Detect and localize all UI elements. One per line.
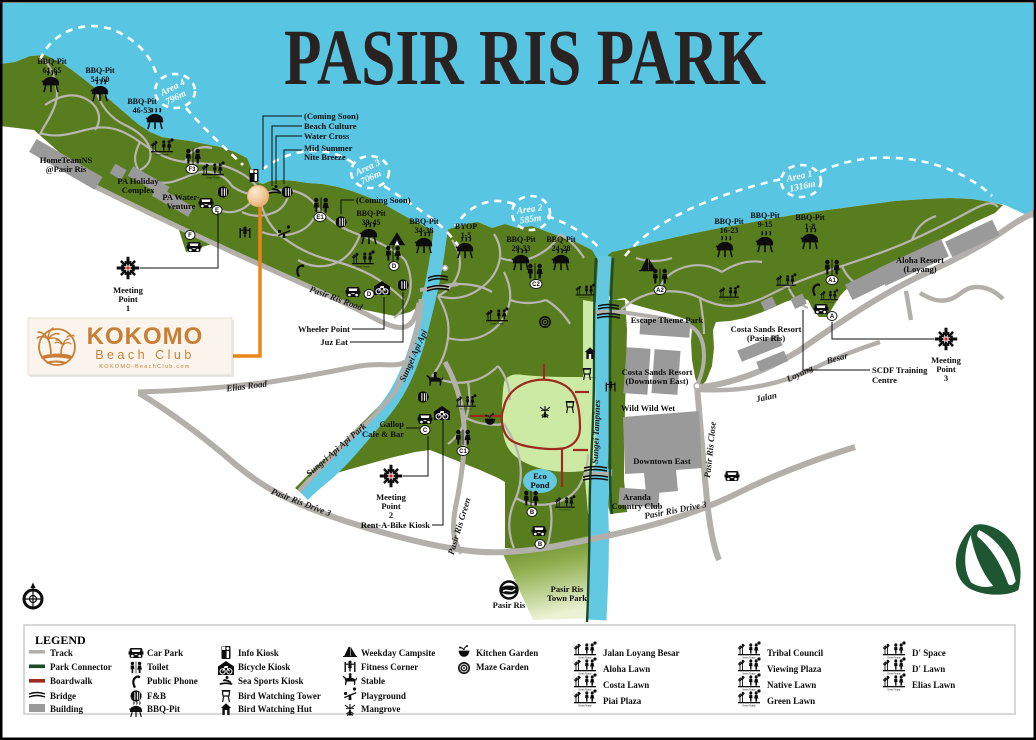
svg-text:C2: C2 — [532, 282, 540, 288]
svg-text:Complex: Complex — [122, 185, 155, 195]
svg-text:Piai Plaza: Piai Plaza — [603, 696, 642, 706]
svg-text:Pasir Ris: Pasir Ris — [493, 600, 526, 610]
svg-text:D: D — [367, 292, 372, 298]
svg-text:F&B: F&B — [147, 691, 166, 701]
svg-text:BBQ-Pit: BBQ-Pit — [714, 217, 744, 226]
svg-text:@Pasir Ris: @Pasir Ris — [46, 164, 87, 174]
svg-text:Wheeler Point: Wheeler Point — [298, 324, 350, 334]
svg-text:Wild Wild Wet: Wild Wild Wet — [621, 403, 675, 413]
svg-text:46-53: 46-53 — [133, 106, 152, 115]
svg-text:(Downtown East): (Downtown East) — [625, 376, 688, 386]
svg-text:Rent-A-Bike Kiosk: Rent-A-Bike Kiosk — [361, 520, 430, 530]
svg-text:Bird Watching Tower: Bird Watching Tower — [238, 691, 321, 701]
svg-text:Water Cross: Water Cross — [304, 131, 350, 141]
svg-text:16-23: 16-23 — [720, 226, 739, 235]
svg-text:Playground: Playground — [361, 691, 406, 701]
svg-text:Elias Lawn: Elias Lawn — [912, 680, 955, 690]
svg-text:Native Lawn: Native Lawn — [767, 680, 816, 690]
svg-text:BBQ-Pit: BBQ-Pit — [546, 235, 576, 244]
svg-text:Pond: Pond — [531, 480, 550, 490]
svg-text:3: 3 — [944, 373, 948, 383]
svg-text:B: B — [530, 510, 535, 516]
svg-text:9-15: 9-15 — [758, 220, 773, 229]
svg-text:Jalan Loyang Besar: Jalan Loyang Besar — [603, 648, 680, 658]
svg-text:Downtown East: Downtown East — [633, 456, 691, 466]
svg-text:F: F — [188, 233, 192, 239]
svg-text:C: C — [423, 428, 428, 434]
svg-text:KOKOMO-BeachClub.com: KOKOMO-BeachClub.com — [99, 364, 190, 370]
svg-text:Fitness Corner: Fitness Corner — [361, 662, 418, 672]
svg-text:BYOP: BYOP — [455, 222, 477, 231]
svg-text:1-8: 1-8 — [805, 222, 816, 231]
svg-text:Car Park: Car Park — [147, 648, 183, 658]
svg-text:Building: Building — [50, 704, 84, 714]
svg-text:Tribal Council: Tribal Council — [767, 648, 824, 658]
svg-text:Venture: Venture — [167, 201, 196, 211]
svg-text:BBQ-Pit: BBQ-Pit — [750, 211, 780, 220]
svg-text:D' Space: D' Space — [912, 648, 946, 658]
svg-text:Beach Club: Beach Club — [95, 348, 195, 362]
svg-text:LEGEND: LEGEND — [35, 633, 86, 647]
svg-text:A: A — [830, 314, 835, 320]
svg-text:(Loyang): (Loyang) — [903, 264, 936, 274]
svg-text:Park Connector: Park Connector — [50, 662, 112, 672]
svg-text:BBQ-Pit: BBQ-Pit — [37, 57, 67, 66]
svg-text:BBQ-Pit: BBQ-Pit — [506, 235, 536, 244]
svg-text:B: B — [538, 542, 543, 548]
svg-text:Nite Breeze: Nite Breeze — [304, 152, 346, 162]
svg-text:Green Lawn: Green Lawn — [767, 696, 815, 706]
svg-text:Info Kiosk: Info Kiosk — [238, 648, 279, 658]
svg-text:C1: C1 — [459, 449, 467, 455]
svg-text:Toilet: Toilet — [147, 662, 169, 672]
svg-text:(Coming Soon): (Coming Soon) — [356, 195, 411, 205]
svg-text:E1: E1 — [316, 215, 324, 221]
svg-text:Town Park: Town Park — [547, 593, 587, 603]
svg-text:A2: A2 — [656, 288, 664, 294]
svg-text:2: 2 — [389, 510, 393, 520]
svg-text:PASIR RIS PARK: PASIR RIS PARK — [284, 15, 766, 102]
svg-text:Centre: Centre — [872, 375, 897, 385]
svg-text:BBQ-Pit: BBQ-Pit — [356, 209, 386, 218]
svg-text:Boardwalk: Boardwalk — [50, 676, 93, 686]
svg-text:34-38: 34-38 — [415, 226, 434, 235]
svg-text:Sea Sports Kiosk: Sea Sports Kiosk — [238, 676, 304, 686]
svg-text:D: D — [392, 264, 397, 270]
svg-text:Bicycle Kiosk: Bicycle Kiosk — [238, 662, 290, 672]
svg-text:BBQ-Pit: BBQ-Pit — [795, 213, 825, 222]
svg-text:(Coming Soon): (Coming Soon) — [304, 111, 359, 121]
svg-text:Escape Theme Park: Escape Theme Park — [631, 315, 704, 325]
svg-text:Beach Culture: Beach Culture — [304, 121, 357, 131]
svg-text:BBQ-Pit: BBQ-Pit — [147, 704, 180, 714]
svg-text:BBQ-Pit: BBQ-Pit — [409, 217, 439, 226]
svg-text:KOKOMO: KOKOMO — [87, 323, 204, 350]
svg-text:Cafe & Bar: Cafe & Bar — [362, 429, 404, 439]
svg-text:Mangrove: Mangrove — [361, 704, 400, 714]
svg-text:54-60: 54-60 — [91, 75, 110, 84]
svg-text:Aloha Lawn: Aloha Lawn — [603, 664, 650, 674]
svg-text:D' Lawn: D' Lawn — [912, 664, 945, 674]
svg-text:F3: F3 — [188, 167, 196, 173]
svg-text:Bird Watching Hut: Bird Watching Hut — [238, 704, 312, 714]
svg-text:29-33: 29-33 — [512, 244, 531, 253]
svg-text:Gallop: Gallop — [379, 419, 404, 429]
svg-text:Costa Lawn: Costa Lawn — [603, 680, 649, 690]
svg-text:BBQ-Pit: BBQ-Pit — [85, 66, 115, 75]
svg-text:Kitchen Garden: Kitchen Garden — [476, 648, 538, 658]
svg-text:SCDF Training: SCDF Training — [872, 365, 928, 375]
svg-text:Juz Eat: Juz Eat — [320, 337, 348, 347]
svg-text:(Pasir Ris): (Pasir Ris) — [747, 333, 785, 343]
svg-text:BBQ-Pit: BBQ-Pit — [127, 97, 157, 106]
svg-text:Track: Track — [50, 648, 73, 658]
svg-text:Viewing Plaza: Viewing Plaza — [767, 664, 822, 674]
svg-text:Bridge: Bridge — [50, 691, 76, 701]
svg-text:Public Phone: Public Phone — [147, 676, 198, 686]
svg-text:Stable: Stable — [361, 676, 385, 686]
svg-text:Maze Garden: Maze Garden — [476, 662, 529, 672]
svg-text:1: 1 — [126, 303, 130, 313]
svg-text:A1: A1 — [828, 278, 836, 284]
svg-text:24-28: 24-28 — [552, 244, 571, 253]
svg-text:Weekday Campsite: Weekday Campsite — [361, 648, 435, 658]
